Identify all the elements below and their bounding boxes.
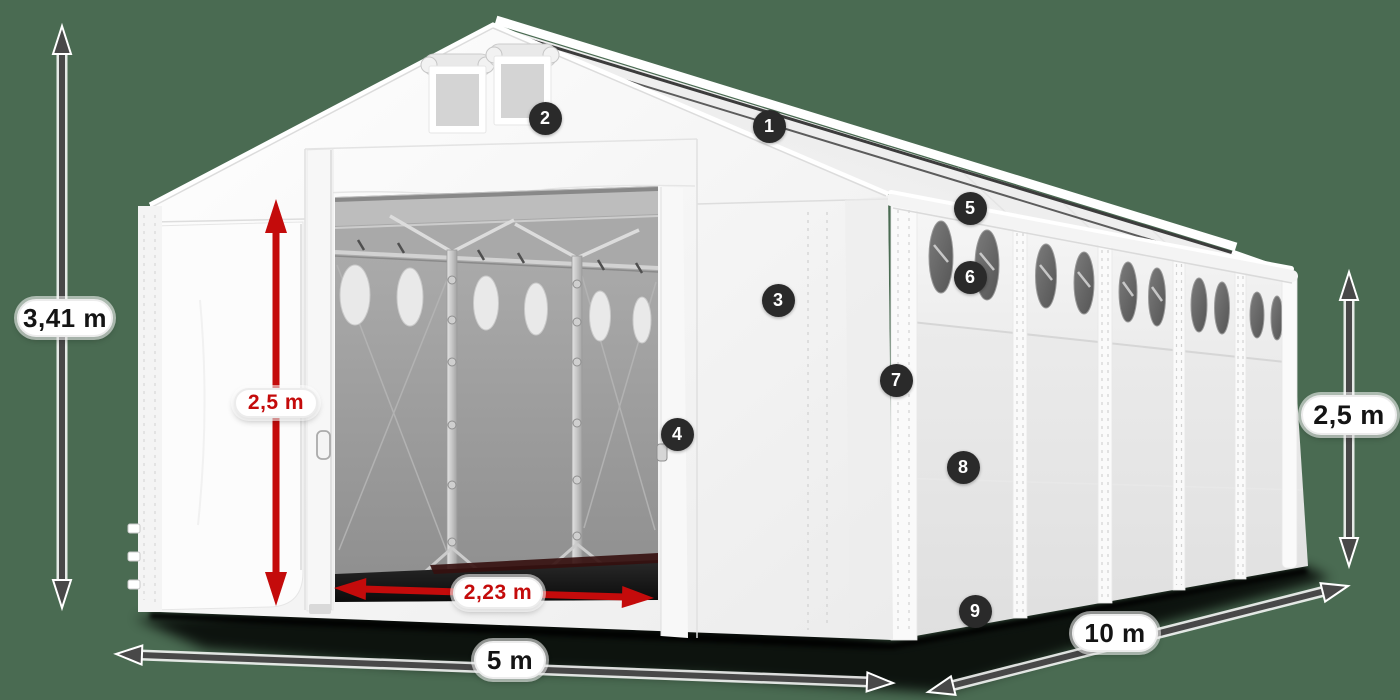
- dimension-label-side-wall-height: 2,5 m: [1301, 395, 1397, 435]
- callout-badge-6[interactable]: 6: [954, 261, 987, 294]
- gable-vent-left: [421, 54, 494, 133]
- callout-badge-1[interactable]: 1: [753, 110, 786, 143]
- dimension-label-door-height: 2,5 m: [234, 388, 318, 418]
- dimension-label-front-width: 5 m: [474, 641, 546, 679]
- dimension-label-side-length: 10 m: [1072, 614, 1158, 652]
- callout-badge-3[interactable]: 3: [762, 284, 795, 317]
- front-left-corner-post: [128, 206, 162, 612]
- door-handle: [317, 431, 330, 459]
- door-interior: [330, 180, 665, 610]
- callout-badge-7[interactable]: 7: [880, 364, 913, 397]
- product-diagram: 3,41 m 2,5 m 2,23 m 5 m 10 m 2,5 m 1 2 3…: [0, 0, 1400, 700]
- dimension-label-total-height: 3,41 m: [17, 299, 113, 337]
- callout-badge-4[interactable]: 4: [661, 418, 694, 451]
- callout-badge-9[interactable]: 9: [959, 595, 992, 628]
- callout-badge-2[interactable]: 2: [529, 102, 562, 135]
- callout-badge-8[interactable]: 8: [947, 451, 980, 484]
- dimension-label-door-width: 2,23 m: [453, 577, 543, 609]
- callout-badge-5[interactable]: 5: [954, 192, 987, 225]
- tent-illustration: [0, 0, 1400, 700]
